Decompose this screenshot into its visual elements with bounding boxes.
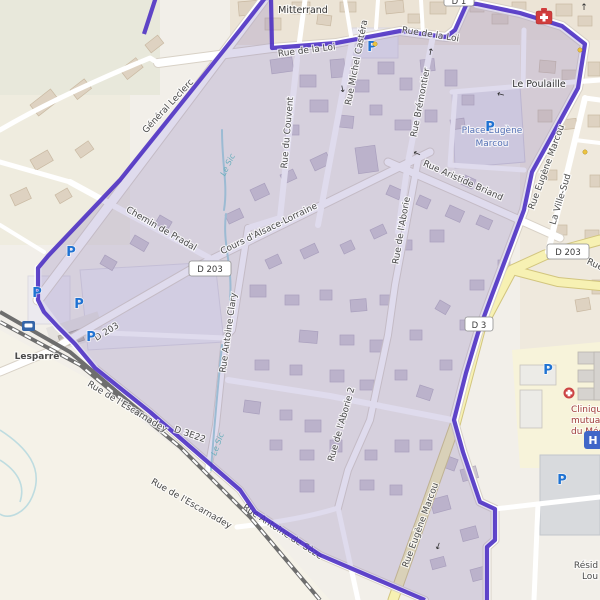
- place-label-residence-2: Lou: [582, 572, 598, 582]
- parking-lot: [540, 455, 600, 535]
- clinic-cross-icon: [564, 388, 575, 399]
- traffic-signal-icon: [578, 48, 582, 52]
- building: [430, 2, 446, 14]
- building: [594, 352, 600, 400]
- place-label-le-poulaille: Le Poulaille: [512, 79, 566, 90]
- traffic-signal-icon: [373, 42, 377, 46]
- badge-text: D 1: [452, 0, 467, 7]
- map-canvas[interactable]: Rue Antoine de Sèze Général Leclerc Rue …: [0, 0, 600, 600]
- building: [578, 16, 592, 26]
- pharmacy-icon-cross: [540, 16, 548, 19]
- clinic-cross: [566, 392, 573, 395]
- station-icon-window: [25, 324, 33, 328]
- building: [385, 0, 404, 14]
- building: [556, 4, 572, 16]
- road-ref-badge-d203-center: D 203: [189, 261, 231, 276]
- map-svg: Rue Antoine de Sèze Général Leclerc Rue …: [0, 0, 600, 600]
- poi-label-clinic-2: mutualiste: [571, 416, 600, 426]
- clinic-building: [520, 390, 542, 428]
- road-ref-badge-d1-top: D 1: [444, 0, 474, 7]
- badge-text: D 203: [555, 248, 580, 258]
- pharmacy-icon-handle: [541, 8, 547, 11]
- hospital-icon: H: [584, 431, 600, 449]
- place-label-eugene-marcou-2: Marcou: [476, 139, 509, 149]
- parking-icon: P: [66, 245, 76, 260]
- field-patch: [0, 0, 160, 95]
- badge-text: D 3: [472, 321, 487, 331]
- road-stub: [585, 98, 600, 100]
- parking-icon: P: [32, 286, 42, 301]
- parking-icon: P: [543, 363, 553, 378]
- place-label-mitterrand: Mitterrand: [278, 5, 328, 16]
- road-ref-badge-d3: D 3: [465, 317, 493, 331]
- poi-label-clinic-1: Clinique: [571, 405, 600, 415]
- road-ref-badge-d203-east: D 203: [547, 244, 589, 259]
- oneway-arrow-icon: ↑: [580, 3, 588, 13]
- traffic-signal-icon: [583, 150, 587, 154]
- parking-icon: P: [485, 120, 495, 135]
- building: [408, 14, 420, 23]
- parking-icon: P: [74, 297, 84, 312]
- parking-icon: P: [86, 330, 96, 345]
- place-label-residence-1: Résid: [574, 560, 598, 571]
- station-label-lesparre: Lesparre: [15, 352, 60, 362]
- building: [590, 175, 600, 187]
- badge-text: D 203: [197, 265, 222, 275]
- building: [588, 62, 600, 76]
- building: [575, 298, 591, 312]
- train-station-icon: [22, 321, 35, 331]
- hospital-icon-letter: H: [588, 434, 597, 447]
- large-building: [578, 352, 600, 400]
- building: [588, 115, 600, 127]
- road-stub: [376, 0, 378, 28]
- parking-icon: P: [557, 473, 567, 488]
